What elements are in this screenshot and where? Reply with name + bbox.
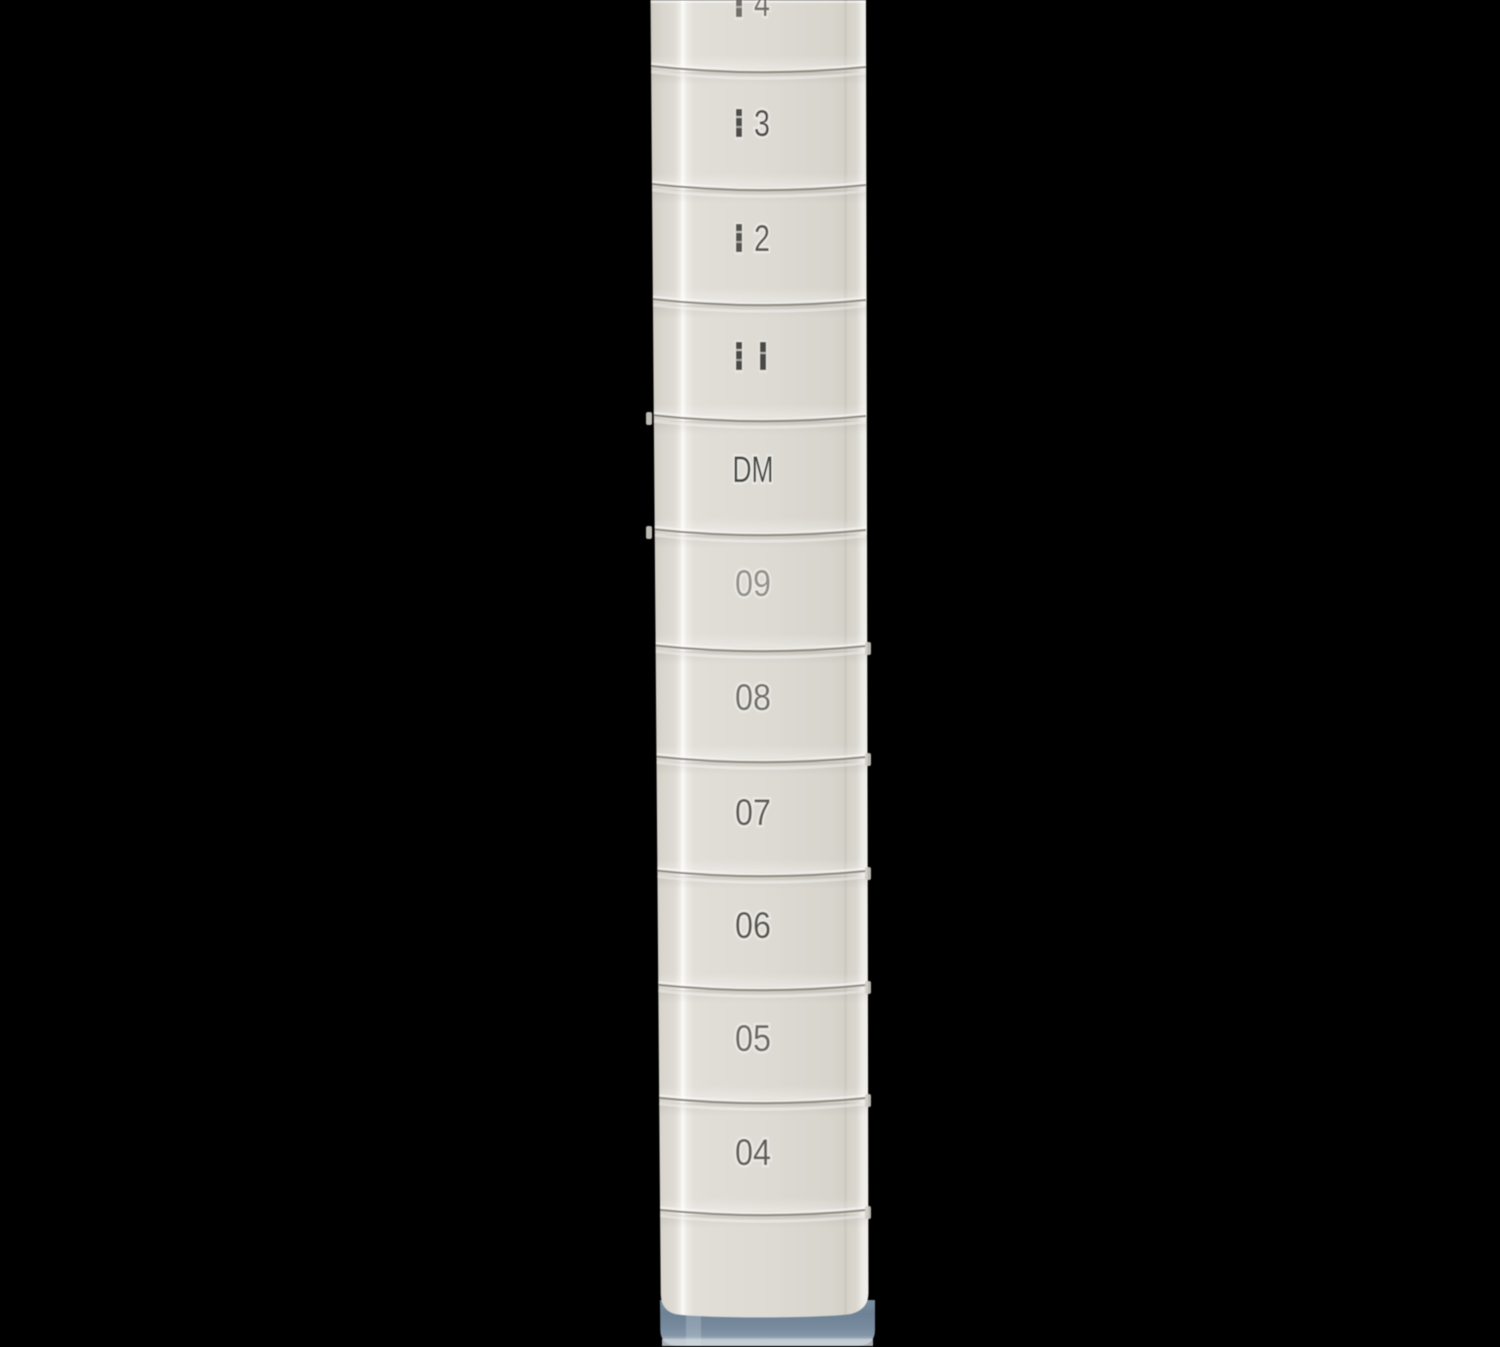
svg-text:08: 08	[735, 677, 771, 718]
svg-text:3: 3	[754, 103, 770, 144]
svg-text:07: 07	[735, 792, 771, 833]
svg-text:09: 09	[735, 563, 771, 604]
svg-text:05: 05	[735, 1018, 771, 1059]
svg-text:2: 2	[754, 218, 770, 259]
svg-text:04: 04	[735, 1132, 771, 1173]
svg-text:4: 4	[754, 0, 770, 24]
svg-text:DM: DM	[733, 449, 774, 490]
svg-text:06: 06	[735, 905, 771, 946]
